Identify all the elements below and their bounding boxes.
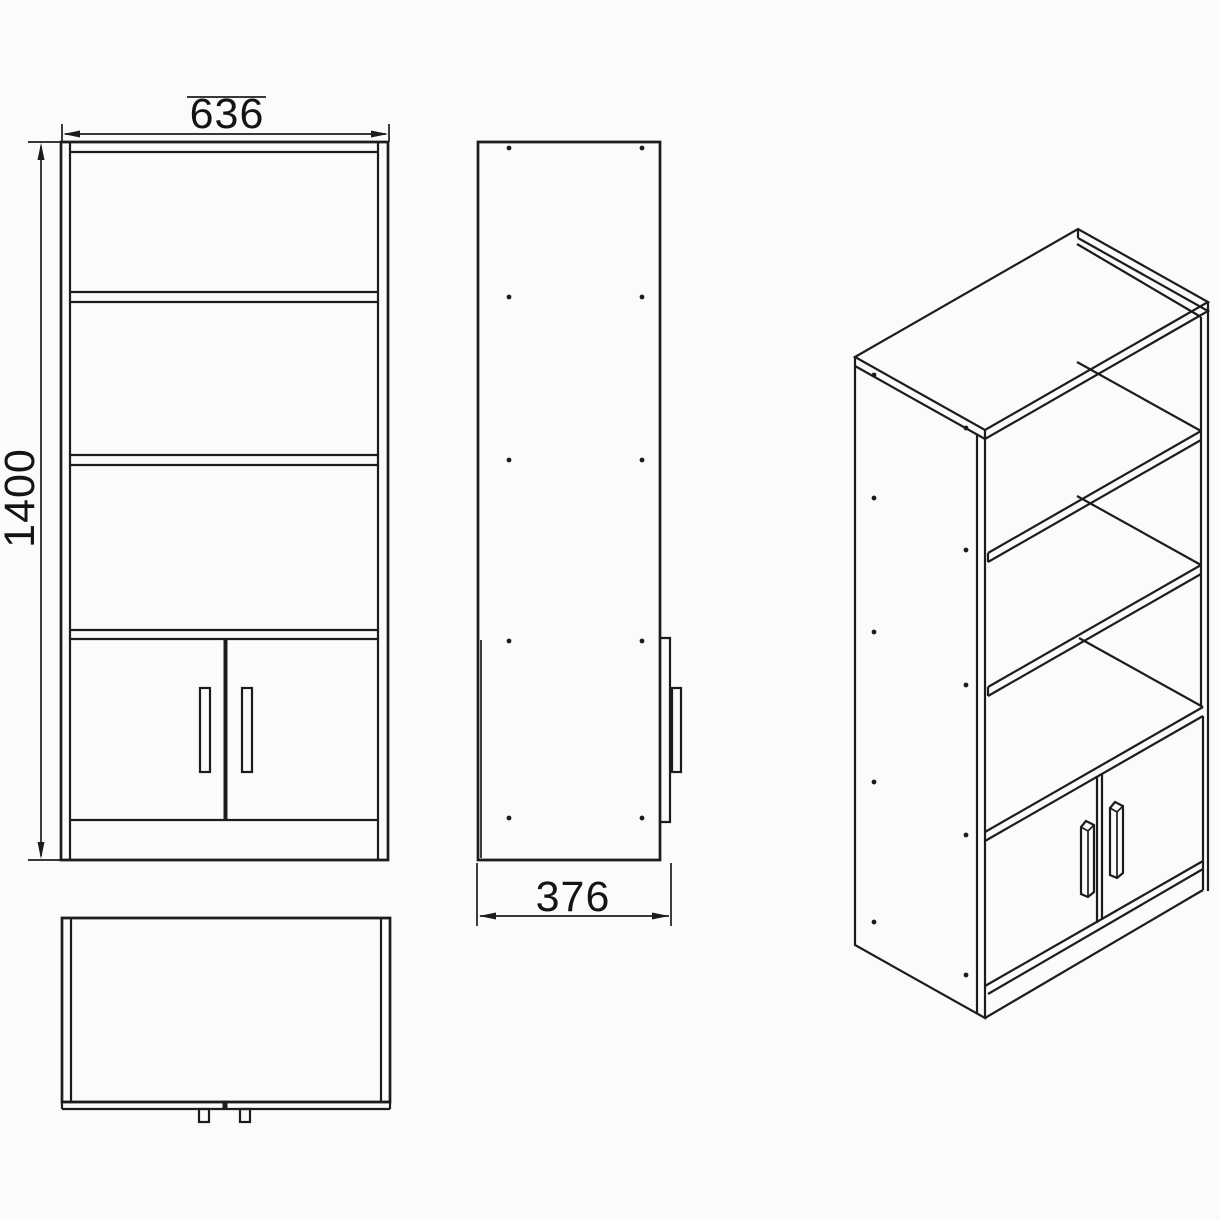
dowel-hole [964,426,969,431]
iso-fixed-shelf [985,638,1203,841]
front-right-door-handle [242,688,252,772]
dowel-hole [507,146,512,151]
depth-dimension-label: 376 [536,873,611,921]
side-door-handle-profile [672,688,681,772]
dowel-hole [872,630,877,635]
width-dimension: 636 [62,90,389,142]
width-dimension-label: 636 [190,90,265,138]
dowel-hole [507,639,512,644]
iso-top-thickness-edges [855,238,1208,439]
front-shelf-1-lines [70,292,378,302]
width-arrow-left [63,131,80,138]
side-elevation-view [478,142,681,860]
dowel-hole [640,146,645,151]
width-arrow-right [371,131,388,138]
dowel-hole [872,373,877,378]
dowel-hole [640,295,645,300]
iso-right-door-handle [1110,802,1123,878]
front-elevation-view [61,142,388,860]
iso-shelf-1 [988,362,1201,562]
dowel-hole [507,295,512,300]
technical-drawing-page: 636 1400 376 [0,0,1220,1220]
depth-dimension: 376 [477,863,671,926]
depth-arrow-right [652,913,669,920]
iso-door-divider [1097,773,1102,923]
dowel-hole [964,833,969,838]
dowel-hole [872,920,877,925]
iso-left-handle-facet [1081,825,1094,897]
plan-right-handle [240,1109,250,1122]
plan-left-handle [199,1109,209,1122]
height-dimension: 1400 [0,142,61,860]
iso-shelf-2 [988,496,1201,696]
iso-right-panel-underside-cap [1077,244,1201,317]
front-left-door-handle [200,688,210,772]
front-fixed-shelf-lines [70,630,378,639]
plan-door-gap-mark [223,1101,228,1110]
side-outline [478,142,660,860]
dowel-hole [872,496,877,501]
dowel-hole [507,816,512,821]
side-door-profile [660,638,670,822]
iso-bottom-edge [985,890,1203,1018]
dowel-hole [640,639,645,644]
iso-top-face [855,229,1208,430]
iso-dowel-holes [872,373,969,978]
iso-left-door-handle [1081,821,1094,897]
dowel-hole [640,458,645,463]
plan-view [62,918,390,1122]
dowel-hole [964,973,969,978]
height-arrow-top [38,143,45,160]
height-dimension-label: 1400 [0,448,44,548]
height-arrow-bottom [38,842,45,859]
drawing-canvas: 636 1400 376 [0,0,1220,1220]
plan-outline [62,918,390,1102]
dowel-hole [872,780,877,785]
side-dowel-holes [507,146,645,821]
iso-right-handle-facet [1110,806,1123,878]
isometric-view [855,229,1208,1018]
dowel-hole [640,816,645,821]
dowel-hole [964,683,969,688]
depth-arrow-left [479,913,496,920]
iso-top-corner-ticks [855,229,1208,439]
iso-plinth-top-edge [988,869,1203,994]
front-shelf-2-lines [70,455,378,465]
dowel-hole [507,458,512,463]
dowel-hole [964,548,969,553]
